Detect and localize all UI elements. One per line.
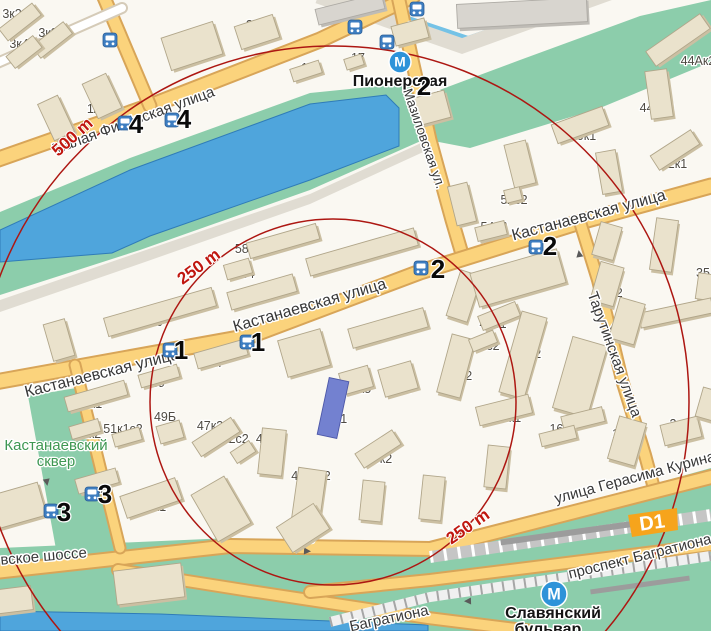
building — [359, 480, 387, 525]
building-label: 44Ак2 — [681, 54, 711, 68]
bus-stop-icon[interactable] — [380, 35, 394, 49]
building-footprint — [419, 475, 445, 521]
bus-icon-window — [532, 243, 541, 248]
building — [418, 475, 447, 524]
bus-icon-wheel — [47, 513, 50, 516]
bus-icon-wheel — [88, 496, 91, 499]
result-marker[interactable]: 2 — [431, 254, 445, 284]
building-footprint — [359, 480, 385, 522]
metro-station-label: бульвар — [515, 621, 582, 631]
metro-station-label: Славянский — [505, 605, 601, 622]
park-label: сквер — [37, 453, 76, 470]
bus-icon-wheel — [538, 249, 541, 252]
bus-icon-wheel — [243, 344, 246, 347]
result-marker[interactable]: 4 — [177, 104, 192, 134]
bus-icon-wheel — [121, 125, 124, 128]
bus-stop-icon[interactable] — [103, 33, 117, 47]
bus-icon-window — [417, 264, 426, 269]
map-canvas: 3к23к33к426к226к11319171/283054к344Ак244… — [0, 0, 711, 631]
result-marker[interactable]: 3 — [57, 497, 71, 527]
building — [484, 445, 513, 492]
bus-icon-window — [383, 38, 392, 43]
bus-icon-window — [88, 490, 97, 495]
bus-icon-wheel — [383, 44, 386, 47]
bus-icon-wheel — [166, 352, 169, 355]
bus-icon-wheel — [112, 42, 115, 45]
bus-icon-wheel — [53, 513, 56, 516]
result-marker[interactable]: 3 — [98, 479, 112, 509]
bus-icon-window — [413, 5, 422, 10]
result-marker[interactable]: 1 — [174, 335, 188, 365]
result-marker[interactable]: 2 — [543, 231, 557, 261]
result-marker[interactable]: 1 — [251, 327, 265, 357]
bus-icon-window — [106, 36, 115, 41]
metro-icon-letter: М — [394, 55, 405, 70]
result-marker[interactable]: 4 — [129, 109, 144, 139]
building-footprint — [0, 586, 33, 615]
bus-icon-wheel — [423, 270, 426, 273]
building-footprint — [258, 428, 287, 476]
bus-icon-wheel — [389, 44, 392, 47]
result-marker[interactable]: 2 — [417, 71, 431, 101]
map-view: 3к23к33к426к226к11319171/283054к344Ак244… — [0, 0, 711, 631]
metro-station-label: Пионерская — [353, 73, 448, 90]
bus-icon-wheel — [351, 29, 354, 32]
bus-stop-icon[interactable] — [529, 240, 543, 254]
bus-icon-wheel — [419, 11, 422, 14]
bus-icon-wheel — [168, 122, 171, 125]
building — [257, 428, 288, 479]
bus-icon-window — [47, 507, 56, 512]
bus-icon-wheel — [532, 249, 535, 252]
bus-icon-wheel — [94, 496, 97, 499]
park-label: Кастанаевский — [4, 437, 107, 454]
bus-icon-wheel — [417, 270, 420, 273]
bus-stop-icon[interactable] — [410, 2, 424, 16]
bus-icon-window — [351, 23, 360, 28]
metro-icon-letter: М — [547, 585, 561, 603]
bus-icon-window — [168, 116, 177, 121]
bus-stop-icon[interactable] — [348, 20, 362, 34]
bus-stop-icon[interactable] — [414, 261, 428, 275]
d1-badge-text: D1 — [638, 510, 666, 535]
bus-icon-wheel — [357, 29, 360, 32]
bus-icon-wheel — [413, 11, 416, 14]
bus-icon-wheel — [106, 42, 109, 45]
